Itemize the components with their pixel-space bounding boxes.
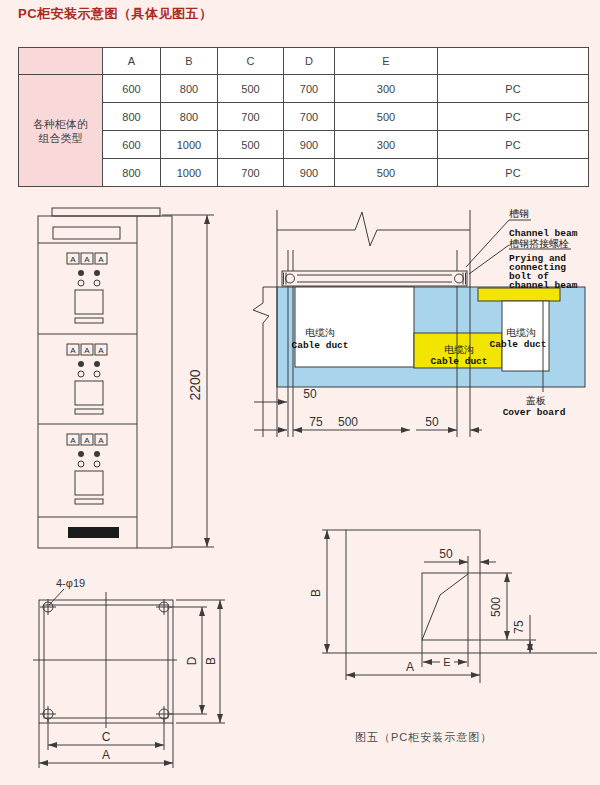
table-cell: 600 xyxy=(103,75,161,103)
cabinet-combination-table: A B C D E 各种柜体的 组合类型 600 800 500 700 300… xyxy=(18,47,589,187)
table-row: 各种柜体的 组合类型 600 800 500 700 300 PC xyxy=(19,75,589,103)
base-frame xyxy=(33,592,177,728)
bolt-label-en-4: channel beam xyxy=(509,280,578,291)
table-cell: 1000 xyxy=(161,131,218,159)
vent-slot xyxy=(68,527,119,538)
table-cell: 500 xyxy=(218,131,284,159)
dim-50-left: 50 xyxy=(303,387,317,401)
indicator-lamp-on xyxy=(94,361,100,367)
dim-a: A xyxy=(102,748,110,762)
dim-75: 75 xyxy=(512,620,526,634)
table-row: 600 1000 500 900 300 PC xyxy=(19,131,589,159)
table-cell: 500 xyxy=(218,75,284,103)
channel-beam-label-cn: 槽钢 xyxy=(509,208,529,219)
table-row: 800 800 700 700 500 PC xyxy=(19,103,589,131)
plan-dimensions: D B C A xyxy=(39,600,225,768)
base-plan-view-drawing: 4-φ19 D B C A xyxy=(20,565,235,780)
dim-e: E xyxy=(443,656,450,668)
table-header-row: A B C D E xyxy=(19,48,589,75)
indicator-lamp-off xyxy=(94,371,100,377)
duct-left-label-en: Cable duct xyxy=(291,340,348,351)
table-cell: 800 xyxy=(161,75,218,103)
row-header-line2: 组合类型 xyxy=(19,131,102,145)
indicator-lamp-off xyxy=(78,280,84,286)
duct-right-label-en: Cable duct xyxy=(489,339,546,350)
leader-line xyxy=(469,245,509,274)
figure-caption: 图五（PC柜安装示意图） xyxy=(355,730,492,745)
cabinet-front-view-drawing: A A A A A A A xyxy=(0,195,235,565)
breaker-window xyxy=(75,381,103,405)
indicator-lamp-on xyxy=(78,270,84,276)
row-header-line1: 各种柜体的 xyxy=(19,117,102,131)
meter-label: A xyxy=(84,346,90,355)
cabinet-outline xyxy=(38,208,172,548)
meter-label: A xyxy=(98,255,104,264)
height-dimension: 2200 xyxy=(162,215,214,547)
table-cell: 300 xyxy=(335,75,438,103)
break-line xyxy=(277,212,470,246)
table-corner-cell xyxy=(19,48,103,75)
cabinet-panel-2: A A A xyxy=(67,344,107,414)
table-cell: 900 xyxy=(284,131,335,159)
table-cell: 500 xyxy=(335,103,438,131)
beam-bolt xyxy=(286,274,295,283)
indicator-lamp-off xyxy=(94,461,100,467)
table-cell: 800 xyxy=(103,159,161,187)
col-header-b: B xyxy=(161,48,218,75)
bolt-label-cn: 槽钢搭接螺栓 xyxy=(509,238,569,249)
dim-c: C xyxy=(102,730,111,744)
table-cell: 700 xyxy=(284,75,335,103)
table-cell: 700 xyxy=(218,103,284,131)
dim-75: 75 xyxy=(309,415,323,429)
cover-label-cn: 盖板 xyxy=(526,395,546,406)
dim-50: 50 xyxy=(439,547,453,561)
dim-b: B xyxy=(204,657,218,665)
dim-a: A xyxy=(406,660,414,674)
indicator-lamp-off xyxy=(78,461,84,467)
catalog-page: PC柜安装示意图（具体见图五） A B C D E 各种柜体的 组合类型 600… xyxy=(0,0,600,785)
table-cell: 800 xyxy=(103,103,161,131)
table-cell: 700 xyxy=(218,159,284,187)
table-cell: PC xyxy=(438,159,589,187)
leader-line xyxy=(466,220,509,267)
meter-label: A xyxy=(70,346,76,355)
table-row-header: 各种柜体的 组合类型 xyxy=(19,75,103,187)
height-dim-label: 2200 xyxy=(187,369,203,400)
leader-line xyxy=(49,589,64,605)
indicator-lamp-off xyxy=(78,371,84,377)
dim-500: 500 xyxy=(338,415,358,429)
indicator-lamp-on xyxy=(78,361,84,367)
indicator-lamp-off xyxy=(94,280,100,286)
holes-label: 4-φ19 xyxy=(56,577,85,589)
cabinet-panel-1: A A A xyxy=(67,253,107,323)
cable-opening xyxy=(422,573,468,640)
meter-label: A xyxy=(98,436,104,445)
dim-b: B xyxy=(309,589,323,597)
duct-middle-label-cn: 电缆沟 xyxy=(444,344,474,355)
table-cell: PC xyxy=(438,103,589,131)
table-cell: 800 xyxy=(161,103,218,131)
table-cell: 700 xyxy=(284,103,335,131)
meter-label: A xyxy=(70,255,76,264)
table-cell: 900 xyxy=(284,159,335,187)
detail-outline xyxy=(346,530,597,683)
breaker-window xyxy=(75,290,103,314)
table-cell: PC xyxy=(438,131,589,159)
meter-label: A xyxy=(84,255,90,264)
breaker-window xyxy=(75,471,103,495)
meter-label: A xyxy=(98,346,104,355)
page-title: PC柜安装示意图（具体见图五） xyxy=(18,5,213,23)
col-header-c: C xyxy=(218,48,284,75)
floor-opening-detail-drawing: 50 500 75 E A B xyxy=(300,515,600,715)
indicator-lamp-on xyxy=(78,451,84,457)
col-header-e: E xyxy=(335,48,438,75)
dim-50-right: 50 xyxy=(425,415,439,429)
beam-labels: 槽钢 Channel beam 槽钢搭接螺栓 Prying and connec… xyxy=(509,208,578,291)
cabinet-panel-3: A A A xyxy=(67,434,107,504)
indicator-lamp-on xyxy=(94,451,100,457)
duct-middle-label-en: Cable duct xyxy=(430,356,487,367)
table-row: 800 1000 700 900 500 PC xyxy=(19,159,589,187)
col-header-type xyxy=(438,48,589,75)
duct-right-label-cn: 电缆沟 xyxy=(506,327,536,338)
table-cell: 600 xyxy=(103,131,161,159)
beam-bolt xyxy=(455,274,464,283)
table-cell: PC xyxy=(438,75,589,103)
cover-label-en: Cover board xyxy=(503,407,566,418)
col-header-d: D xyxy=(284,48,335,75)
cable-trench-section-drawing: 槽钢 Channel beam 槽钢搭接螺栓 Prying and connec… xyxy=(240,195,600,445)
col-header-a: A xyxy=(103,48,161,75)
dim-d: D xyxy=(185,656,199,665)
dim-500: 500 xyxy=(489,597,503,617)
table-cell: 1000 xyxy=(161,159,218,187)
table-cell: 500 xyxy=(335,159,438,187)
meter-label: A xyxy=(84,436,90,445)
meter-label: A xyxy=(70,436,76,445)
indicator-lamp-on xyxy=(94,270,100,276)
table-cell: 300 xyxy=(335,131,438,159)
duct-left-label-cn: 电缆沟 xyxy=(305,327,335,338)
